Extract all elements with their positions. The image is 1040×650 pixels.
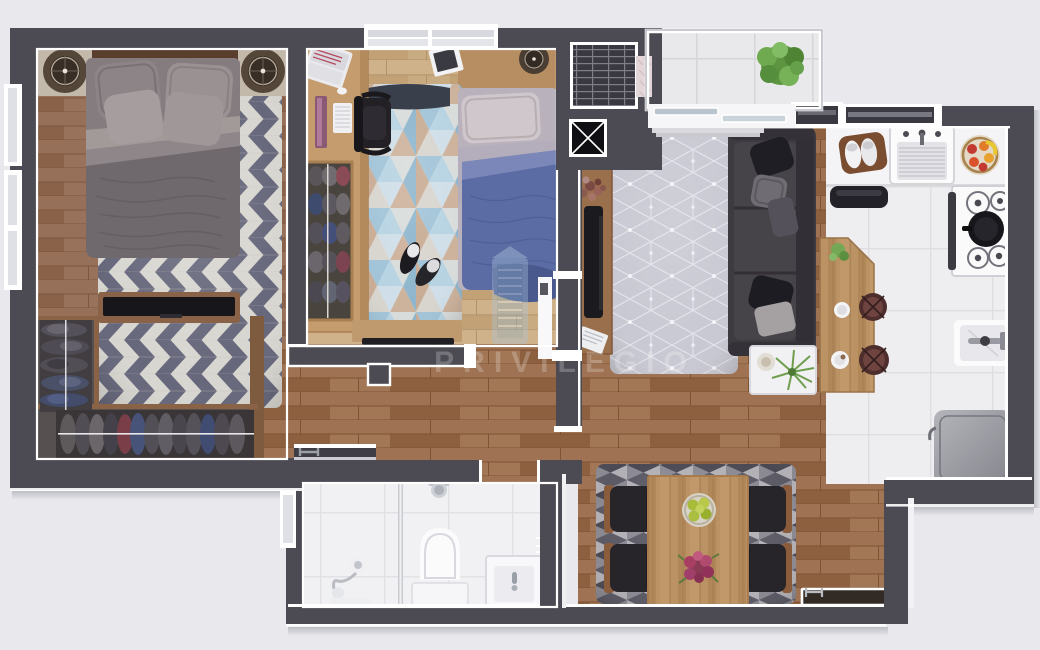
svg-text:PRIVILEGIO: PRIVILEGIO	[434, 346, 696, 379]
